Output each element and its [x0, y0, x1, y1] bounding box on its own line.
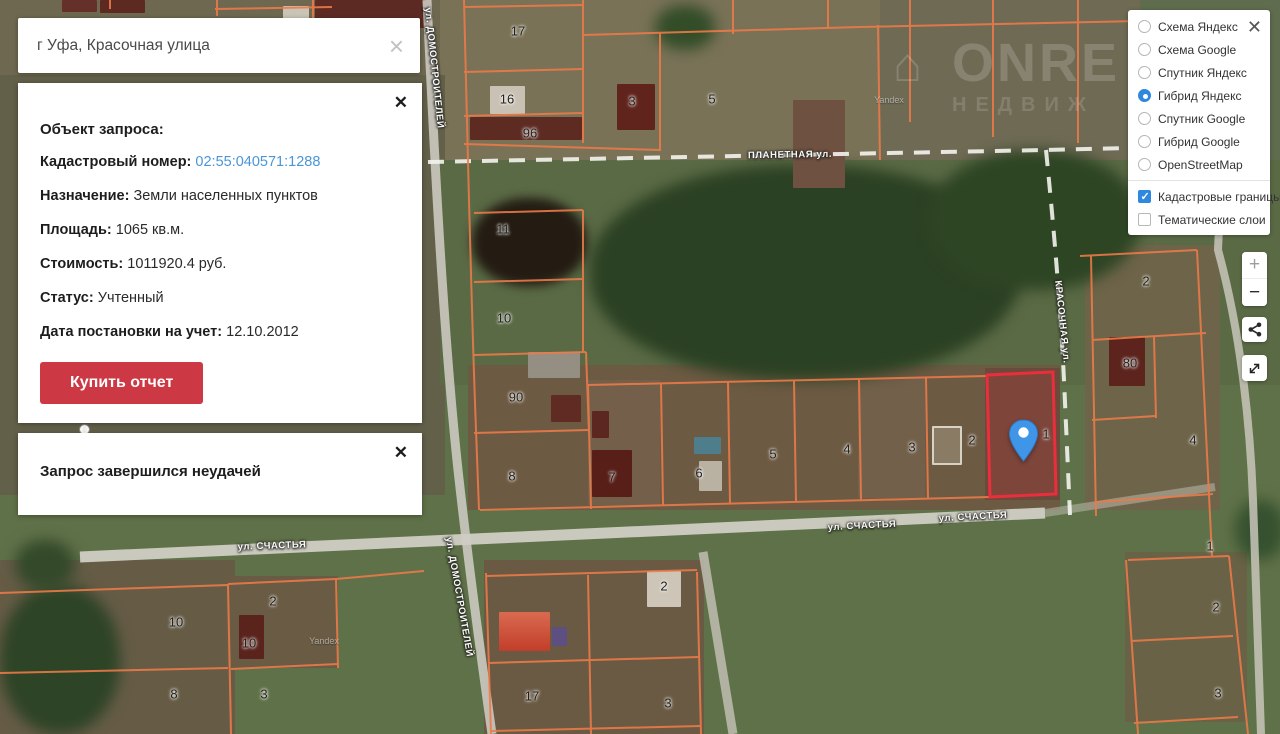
base-layer-option[interactable]: Схема Google	[1128, 38, 1270, 61]
base-layer-option[interactable]: Гибрид Яндекс	[1128, 84, 1270, 107]
radio-icon	[1138, 89, 1151, 102]
info-panel-title: Объект запроса:	[40, 121, 400, 138]
zoom-controls: + −	[1242, 252, 1267, 306]
info-row-value: Учтенный	[98, 290, 164, 306]
radio-icon	[1138, 112, 1151, 125]
info-row: Назначение: Земли населенных пунктов	[40, 187, 400, 206]
base-layer-label: Спутник Яндекс	[1158, 66, 1247, 80]
info-row: Стоимость: 1011920.4 руб.	[40, 255, 400, 274]
info-row: Кадастровый номер: 02:55:040571:1288	[40, 153, 400, 172]
fullscreen-button[interactable]	[1242, 355, 1267, 381]
search-input[interactable]	[35, 36, 387, 56]
close-icon[interactable]: ✕	[1247, 19, 1262, 35]
radio-icon	[1138, 66, 1151, 79]
radio-icon	[1138, 135, 1151, 148]
info-row-label: Стоимость:	[40, 256, 123, 272]
base-layer-label: Гибрид Google	[1158, 135, 1240, 149]
map-viewport[interactable]: ⌂ ONRE НЕДВИЖ 17169635111090876543212804…	[0, 0, 1280, 734]
error-message: Запрос завершился неудачей	[40, 463, 400, 480]
info-row-label: Кадастровый номер:	[40, 154, 191, 170]
base-layer-label: OpenStreetMap	[1158, 158, 1243, 172]
base-layer-option[interactable]: Спутник Google	[1128, 107, 1270, 130]
base-layer-option[interactable]: Спутник Яндекс	[1128, 61, 1270, 84]
object-info-panel: ✕ Объект запроса: Кадастровый номер: 02:…	[18, 83, 422, 423]
fullscreen-icon	[1247, 361, 1262, 376]
buy-report-button[interactable]: Купить отчет	[40, 362, 203, 404]
overlay-option[interactable]: Тематические слои	[1128, 208, 1270, 231]
base-layer-label: Гибрид Яндекс	[1158, 89, 1241, 103]
base-layer-option[interactable]: OpenStreetMap	[1128, 153, 1270, 176]
close-icon[interactable]: ✕	[394, 94, 408, 111]
info-row: Статус: Учтенный	[40, 289, 400, 308]
checkbox-icon	[1138, 213, 1151, 226]
zoom-out-button[interactable]: −	[1242, 279, 1267, 306]
info-row-label: Назначение:	[40, 188, 129, 204]
info-row-value: Земли населенных пунктов	[133, 188, 317, 204]
radio-icon	[1138, 43, 1151, 56]
info-row-value[interactable]: 02:55:040571:1288	[195, 154, 320, 170]
info-row-label: Площадь:	[40, 222, 112, 238]
base-layer-label: Спутник Google	[1158, 112, 1245, 126]
map-pin-icon[interactable]	[1008, 419, 1039, 463]
info-row: Площадь: 1065 кв.м.	[40, 221, 400, 240]
info-row-value: 12.10.2012	[226, 324, 299, 340]
info-row: Дата постановки на учет: 12.10.2012	[40, 323, 400, 342]
clear-search-icon[interactable]: ×	[387, 36, 406, 56]
request-error-panel: ✕ Запрос завершился неудачей	[18, 433, 422, 515]
base-layer-label: Схема Google	[1158, 43, 1236, 57]
info-row-label: Статус:	[40, 290, 94, 306]
search-bar: ×	[18, 18, 420, 73]
info-rows: Кадастровый номер: 02:55:040571:1288 Наз…	[40, 153, 400, 342]
radio-icon	[1138, 20, 1151, 33]
zoom-in-button[interactable]: +	[1242, 252, 1267, 279]
divider	[1128, 180, 1270, 181]
info-row-label: Дата постановки на учет:	[40, 324, 222, 340]
overlay-label: Кадастровые границы	[1158, 190, 1280, 204]
close-icon[interactable]: ✕	[394, 444, 408, 461]
share-button[interactable]	[1242, 317, 1267, 342]
overlay-options: Кадастровые границы Тематические слои	[1128, 185, 1270, 231]
base-layer-options: Схема Яндекс Схема Google Спутник Яндекс…	[1128, 15, 1270, 176]
checkbox-icon	[1138, 190, 1151, 203]
base-layer-label: Схема Яндекс	[1158, 20, 1238, 34]
share-icon	[1248, 322, 1262, 337]
layers-panel: ✕ Схема Яндекс Схема Google Спутник Янде…	[1128, 10, 1270, 235]
base-layer-option[interactable]: Гибрид Google	[1128, 130, 1270, 153]
info-row-value: 1011920.4 руб.	[127, 256, 226, 272]
info-row-value: 1065 кв.м.	[116, 222, 184, 238]
overlay-option[interactable]: Кадастровые границы	[1128, 185, 1270, 208]
overlay-label: Тематические слои	[1158, 213, 1266, 227]
radio-icon	[1138, 158, 1151, 171]
